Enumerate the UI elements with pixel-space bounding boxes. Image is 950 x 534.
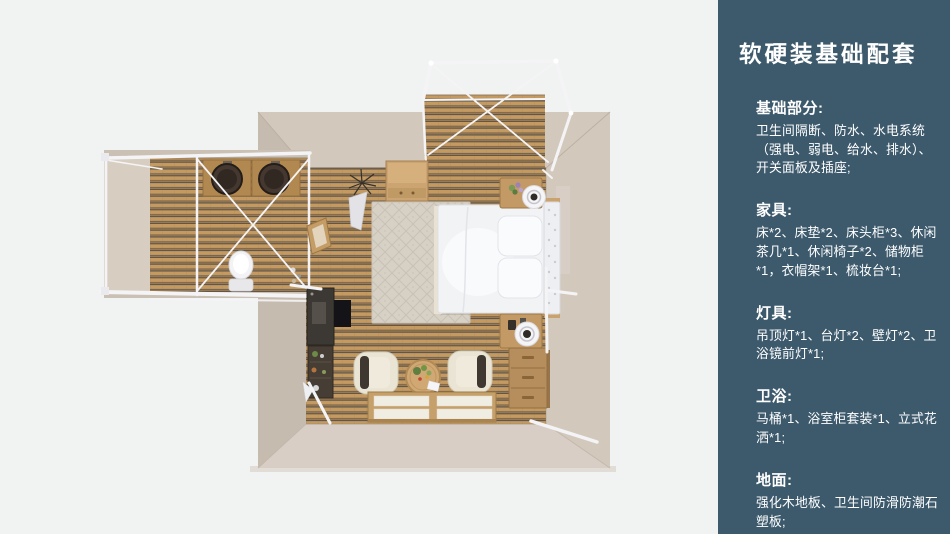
section-flooring: 地面: 强化木地板、卫生间防滑防潮石塑板;: [756, 469, 940, 532]
wall-cabinet: [386, 161, 428, 201]
frame-joint: [569, 111, 574, 116]
section-heading: 家具:: [756, 199, 940, 220]
coffee-table: [406, 360, 440, 394]
lounge-chair-left: [354, 352, 398, 394]
floor-platform-mats: [368, 392, 496, 422]
section-body: 卫生间隔断、防水、水电系统（强电、弱电、给水、排水）、开关面板及插座;: [756, 122, 940, 178]
section-heading: 地面:: [756, 469, 940, 490]
toilet: [229, 251, 253, 291]
dresser-drawers: [509, 348, 550, 408]
info-panel: 软硬装基础配套 基础部分: 卫生间隔断、防水、水电系统（强电、弱电、给水、排水）…: [718, 0, 950, 534]
table-lamp: [523, 186, 546, 209]
frame-joint: [553, 58, 558, 63]
frame-joint: [428, 60, 433, 65]
frame-joint: [101, 153, 109, 161]
bathroom-wing: [101, 150, 313, 301]
laptop: [312, 302, 326, 324]
double-bed: [434, 198, 560, 318]
lounge-chair-right: [448, 351, 492, 393]
section-heading: 卫浴:: [756, 385, 940, 406]
section-body: 床*2、床垫*2、床头柜*3、休闲茶几*1、休闲椅子*2、储物柜*1，衣帽架*1…: [756, 224, 940, 280]
storage-rack: [303, 346, 333, 402]
nightstand-top: [500, 178, 546, 209]
section-heading: 灯具:: [756, 302, 940, 323]
frame-joint: [101, 287, 109, 295]
slide: 软硬装基础配套 基础部分: 卫生间隔断、防水、水电系统（强电、弱电、给水、排水）…: [0, 0, 950, 534]
section-body: 吊顶灯*1、台灯*2、壁灯*2、卫浴镜前灯*1;: [756, 327, 940, 365]
section-heading: 基础部分:: [756, 97, 940, 118]
floorplan-render: [0, 0, 718, 534]
panel-title: 软硬装基础配套: [739, 42, 940, 68]
pillow: [498, 258, 542, 298]
table-lamp: [515, 322, 539, 346]
pillow: [498, 216, 542, 256]
wing-closet-area: [108, 158, 152, 292]
section-body: 马桶*1、浴室柜套装*1、立式花洒*1;: [756, 410, 940, 448]
section-bathroom: 卫浴: 马桶*1、浴室柜套装*1、立式花洒*1;: [756, 385, 940, 448]
section-basics: 基础部分: 卫生间隔断、防水、水电系统（强电、弱电、给水、排水）、开关面板及插座…: [756, 97, 940, 178]
nightstand-bottom: [500, 314, 542, 348]
section-body: 强化木地板、卫生间防滑防潮石塑板;: [756, 494, 940, 532]
section-furniture: 家具: 床*2、床垫*2、床头柜*3、休闲茶几*1、休闲椅子*2、储物柜*1，衣…: [756, 199, 940, 280]
section-lighting: 灯具: 吊顶灯*1、台灯*2、壁灯*2、卫浴镜前灯*1;: [756, 302, 940, 365]
desk-chair: [334, 300, 351, 327]
